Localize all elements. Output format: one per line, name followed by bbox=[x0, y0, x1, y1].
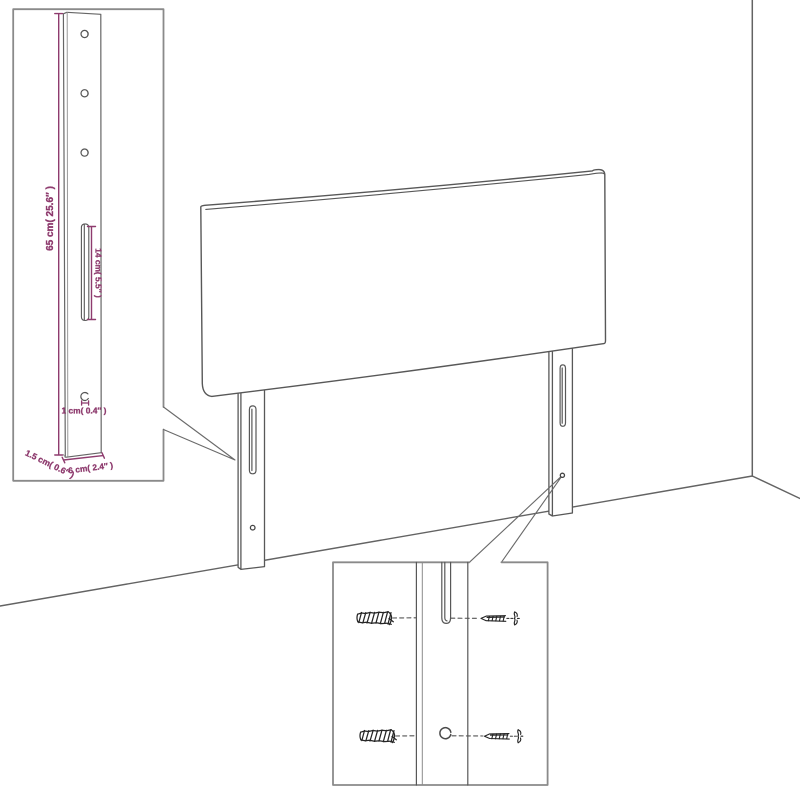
svg-text:14 cm( 5.5″ ): 14 cm( 5.5″ ) bbox=[93, 248, 103, 298]
svg-text:65 cm( 25.6″ ): 65 cm( 25.6″ ) bbox=[45, 186, 56, 251]
svg-text:1 cm( 0.4″ ): 1 cm( 0.4″ ) bbox=[62, 405, 107, 415]
